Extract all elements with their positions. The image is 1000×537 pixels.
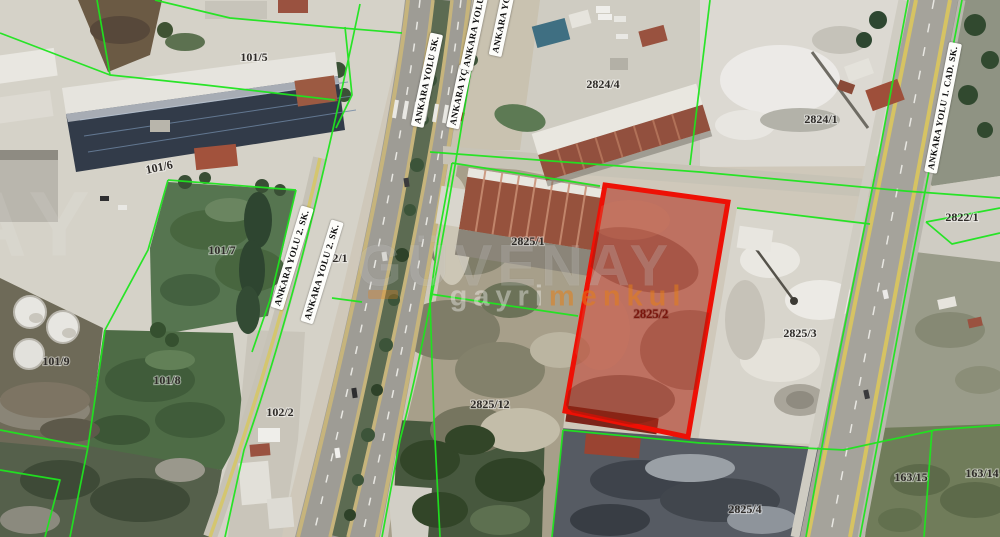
parcel-label: 2824/1 [804, 112, 837, 126]
parcel-label: 2825/4 [728, 502, 761, 516]
parcel-label: 101/5 [240, 50, 267, 64]
watermark-subtitle: gayrimenkul [450, 281, 687, 314]
satellite-map-canvas[interactable]: 101/5 101/6 101/7 101/9 101/8 102/1 102/… [0, 0, 1000, 537]
parcel-label: 101/8 [153, 373, 180, 387]
watermark-fragment: AY [0, 173, 100, 278]
parcel-label: 2825/3 [783, 326, 816, 340]
parcel-label: 101/9 [42, 354, 69, 368]
parcel-label: 101/7 [208, 243, 235, 257]
watermark-subtitle-right: menkul [549, 281, 687, 313]
parcel-label: 2824/4 [586, 77, 619, 91]
parcel-label: 102/2 [266, 405, 293, 419]
parcel-label: 163/14 [965, 466, 998, 480]
parcel-label: 2825/12 [470, 397, 509, 411]
watermark-subtitle-left: gayri [450, 281, 549, 313]
parcel-label: 2822/1 [945, 210, 978, 224]
parcel-label: 163/15 [894, 470, 927, 484]
